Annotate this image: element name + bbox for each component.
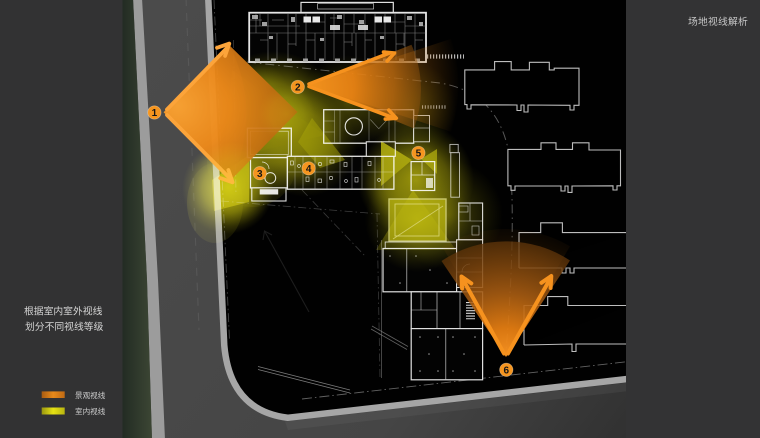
svg-text:5: 5	[416, 149, 422, 160]
svg-text:场地视线解析: 场地视线解析	[688, 15, 748, 28]
svg-text:1: 1	[152, 108, 158, 119]
svg-text:3: 3	[257, 169, 263, 180]
svg-text:景观视线: 景观视线	[75, 390, 106, 400]
svg-text:4: 4	[306, 164, 312, 175]
svg-text:6: 6	[504, 366, 510, 377]
svg-text:室内视线: 室内视线	[75, 406, 106, 416]
svg-text:划分不同视线等级: 划分不同视线等级	[25, 320, 104, 333]
svg-text:根据室内室外视线: 根据室内室外视线	[24, 305, 103, 318]
svg-text:2: 2	[295, 83, 301, 94]
